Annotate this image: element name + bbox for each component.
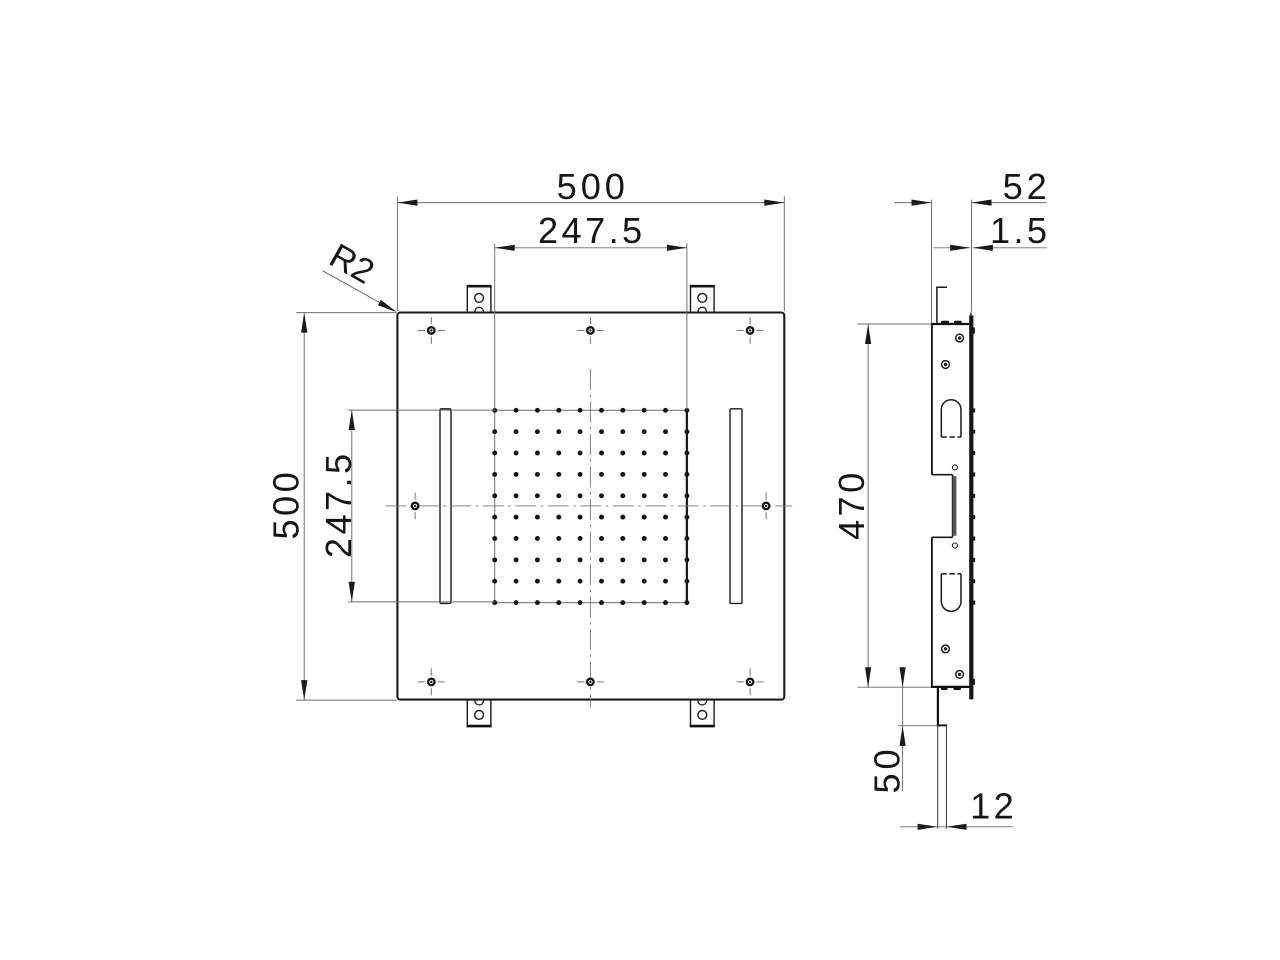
svg-text:470: 470 [831, 469, 872, 540]
svg-text:50: 50 [866, 745, 907, 793]
svg-text:247.5: 247.5 [318, 451, 359, 559]
svg-text:1.5: 1.5 [990, 210, 1051, 251]
svg-text:500: 500 [557, 166, 629, 207]
svg-text:247.5: 247.5 [538, 210, 646, 251]
svg-text:500: 500 [266, 469, 307, 540]
svg-text:12: 12 [970, 786, 1017, 827]
svg-text:52: 52 [1003, 166, 1051, 207]
